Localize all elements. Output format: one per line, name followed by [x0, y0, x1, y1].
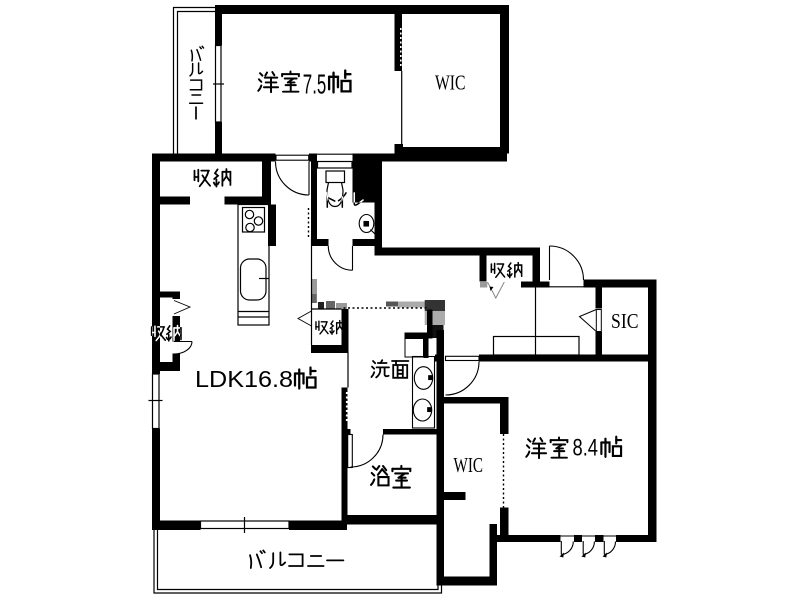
svg-text:WIC: WIC — [454, 453, 484, 477]
svg-text:8.4: 8.4 — [573, 435, 599, 462]
svg-text:WIC: WIC — [435, 71, 466, 95]
svg-text:7.5: 7.5 — [303, 69, 327, 100]
svg-text:LDK16.8: LDK16.8 — [195, 366, 293, 392]
svg-text:SIC: SIC — [611, 309, 639, 333]
